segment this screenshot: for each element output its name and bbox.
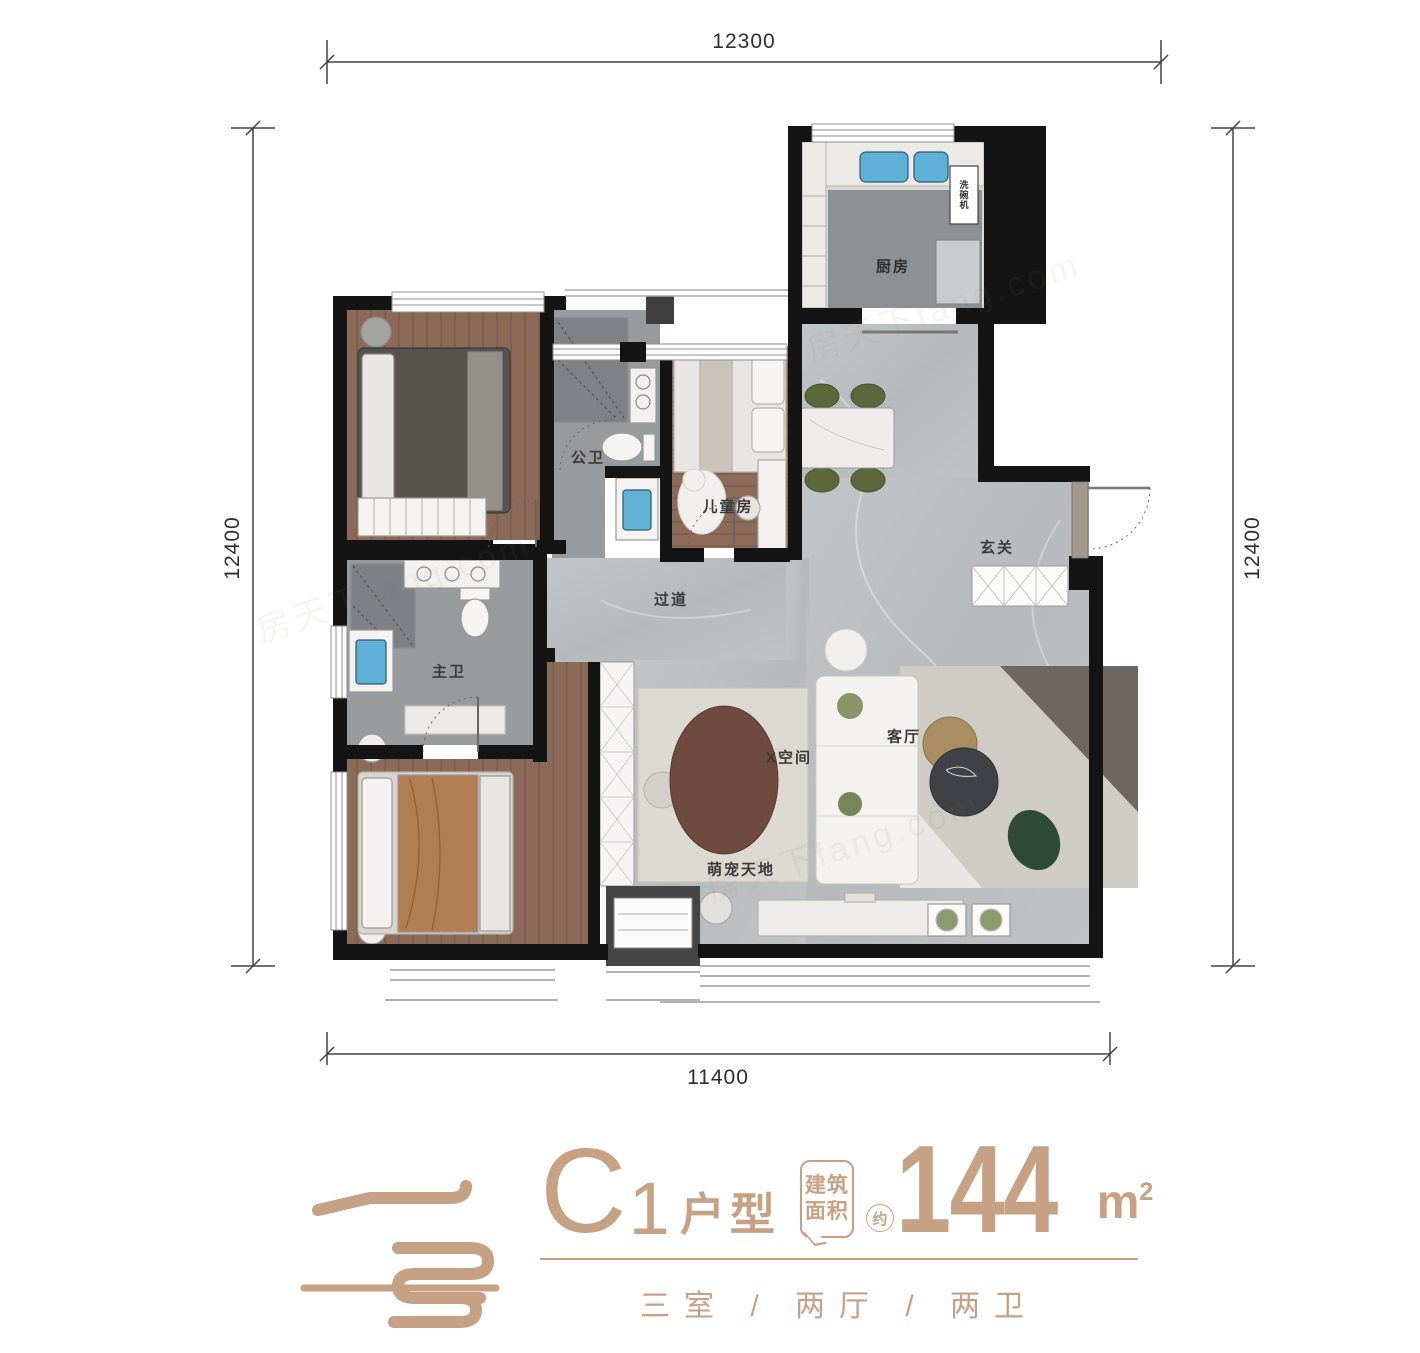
dim-left-label: 12400: [221, 516, 245, 579]
room-label-living: 客厅: [887, 726, 921, 747]
corridor-closet: [600, 662, 634, 886]
bedroom1-furniture: [358, 317, 510, 536]
approx-badge: 约: [866, 1204, 894, 1232]
room-label-foyer: 玄关: [980, 537, 1014, 558]
room-label-x-space: X空间: [766, 747, 812, 768]
pet-bay-window: [606, 886, 700, 1000]
unit-letter: C: [540, 1142, 627, 1240]
title-divider: [540, 1258, 1138, 1260]
area-unit: m2: [1097, 1175, 1154, 1230]
unit-suffix: 户型: [680, 1192, 780, 1237]
dim-right-label: 12400: [1241, 516, 1265, 579]
room-label-corridor: 过道: [654, 589, 688, 610]
unit-number: 1: [629, 1178, 670, 1240]
area-unit-m: m: [1097, 1176, 1140, 1229]
area-type-bubble: 建筑 面积: [800, 1160, 854, 1238]
bubble-line2: 面积: [805, 1199, 849, 1225]
area-value: 144: [896, 1141, 1057, 1240]
foyer-cabinet: [972, 566, 1068, 606]
room-label-kids-room: 儿童房: [702, 496, 753, 517]
dim-bottom-label: 11400: [687, 1066, 749, 1090]
room-label-pet-area: 萌宠天地: [707, 859, 775, 880]
cloud-logo-icon: [298, 1168, 503, 1343]
area-unit-exponent: 2: [1139, 1178, 1153, 1206]
unit-title-row: C 1 户型 建筑 面积 约 144 m2: [540, 1140, 1153, 1240]
room-label-dishwasher: 洗碗机: [958, 180, 971, 210]
room-label-master-bath: 主卫: [432, 661, 466, 682]
floor-plan-graphic: [0, 0, 1420, 1065]
floor-plan-page: 房天下fang.com 房天下fang.com 房天下fang.com 1230…: [0, 0, 1420, 1353]
bubble-line1: 建筑: [805, 1173, 849, 1199]
room-label-public-bath: 公卫: [571, 447, 605, 468]
dim-top-label: 12300: [712, 30, 775, 54]
layout-subtitle: 三室 / 两厅 / 两卫: [540, 1281, 1138, 1325]
room-label-kitchen: 厨房: [876, 256, 910, 277]
